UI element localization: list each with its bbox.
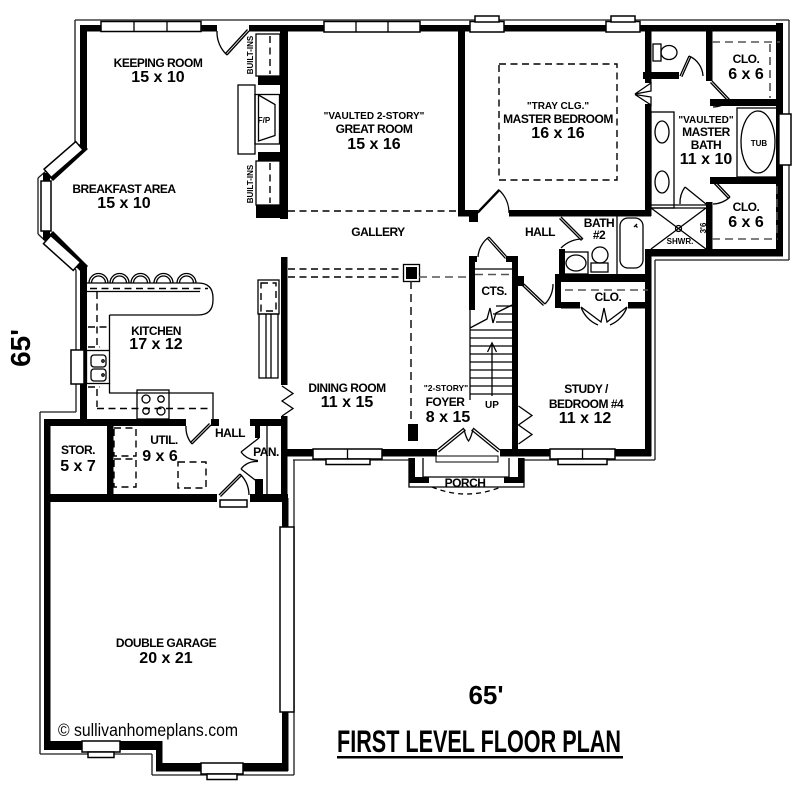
svg-text:MASTER: MASTER (682, 125, 731, 139)
svg-text:SHWR.: SHWR. (667, 237, 694, 246)
svg-text:BUILT-INS: BUILT-INS (246, 164, 255, 203)
svg-text:#2: #2 (593, 228, 606, 242)
svg-text:BREAKFAST AREA: BREAKFAST AREA (72, 182, 176, 196)
svg-text:BEDROOM #4: BEDROOM #4 (549, 397, 624, 411)
svg-text:15 x 16: 15 x 16 (347, 136, 400, 153)
svg-text:BUILT-INS: BUILT-INS (246, 35, 255, 74)
svg-text:FOYER: FOYER (426, 395, 466, 409)
svg-text:"2-STORY": "2-STORY" (424, 383, 468, 393)
svg-text:GALLERY: GALLERY (351, 225, 405, 239)
svg-text:17 x 12: 17 x 12 (129, 336, 182, 353)
svg-text:UP: UP (485, 400, 499, 411)
svg-text:PAN.: PAN. (253, 445, 279, 459)
svg-text:© sullivanhomeplans.com: © sullivanhomeplans.com (58, 720, 238, 740)
svg-text:PORCH: PORCH (445, 476, 486, 490)
svg-text:CTS.: CTS. (481, 284, 507, 298)
svg-text:"VAULTED 2-STORY": "VAULTED 2-STORY" (324, 111, 425, 122)
svg-text:HALL: HALL (215, 426, 245, 440)
svg-text:DINING ROOM: DINING ROOM (308, 381, 386, 395)
svg-text:11 x 15: 11 x 15 (321, 394, 374, 411)
svg-text:6 x 6: 6 x 6 (728, 214, 764, 231)
svg-text:CLO.: CLO. (733, 52, 760, 66)
svg-text:65': 65' (5, 329, 36, 367)
svg-text:DOUBLE GARAGE: DOUBLE GARAGE (116, 636, 217, 650)
svg-text:15 x 10: 15 x 10 (97, 195, 150, 212)
svg-text:3'6: 3'6 (699, 222, 708, 233)
svg-text:15 x 10: 15 x 10 (131, 69, 184, 86)
svg-text:GREAT ROOM: GREAT ROOM (336, 122, 413, 136)
svg-text:HALL: HALL (525, 225, 555, 239)
svg-text:FIRST LEVEL FLOOR PLAN: FIRST LEVEL FLOOR PLAN (337, 723, 621, 759)
svg-text:9 x 6: 9 x 6 (142, 448, 178, 465)
svg-text:8 x 15: 8 x 15 (426, 409, 471, 426)
svg-text:"TRAY CLG.": "TRAY CLG." (527, 101, 590, 112)
svg-text:5 x 7: 5 x 7 (60, 458, 96, 475)
svg-text:20 x 21: 20 x 21 (139, 650, 192, 667)
svg-text:UTIL.: UTIL. (150, 433, 178, 447)
svg-text:11 x 10: 11 x 10 (680, 151, 733, 168)
svg-text:F/P: F/P (258, 116, 271, 125)
svg-text:CLO.: CLO. (733, 200, 760, 214)
svg-text:CLO.: CLO. (595, 290, 622, 304)
svg-text:BATH: BATH (691, 138, 721, 152)
svg-text:65': 65' (468, 680, 503, 710)
svg-text:11 x 12: 11 x 12 (559, 410, 612, 427)
svg-text:STOR.: STOR. (61, 443, 95, 457)
svg-text:TUB: TUB (751, 139, 768, 148)
svg-text:KEEPING ROOM: KEEPING ROOM (114, 56, 203, 70)
svg-text:6 x 6: 6 x 6 (728, 66, 764, 83)
svg-text:MASTER BEDROOM: MASTER BEDROOM (503, 112, 613, 126)
svg-text:16 x 16: 16 x 16 (531, 125, 584, 142)
svg-text:STUDY /: STUDY / (564, 382, 609, 396)
